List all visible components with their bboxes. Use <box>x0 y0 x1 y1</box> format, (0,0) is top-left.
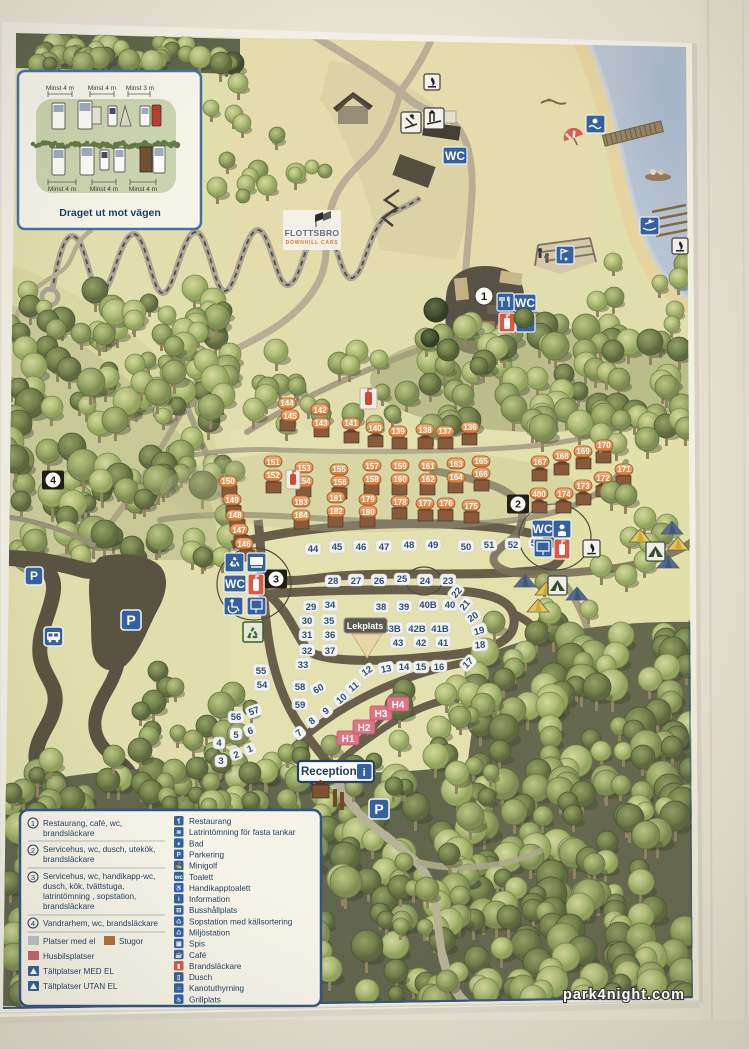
svg-text:park4night.com: park4night.com <box>563 987 685 1003</box>
